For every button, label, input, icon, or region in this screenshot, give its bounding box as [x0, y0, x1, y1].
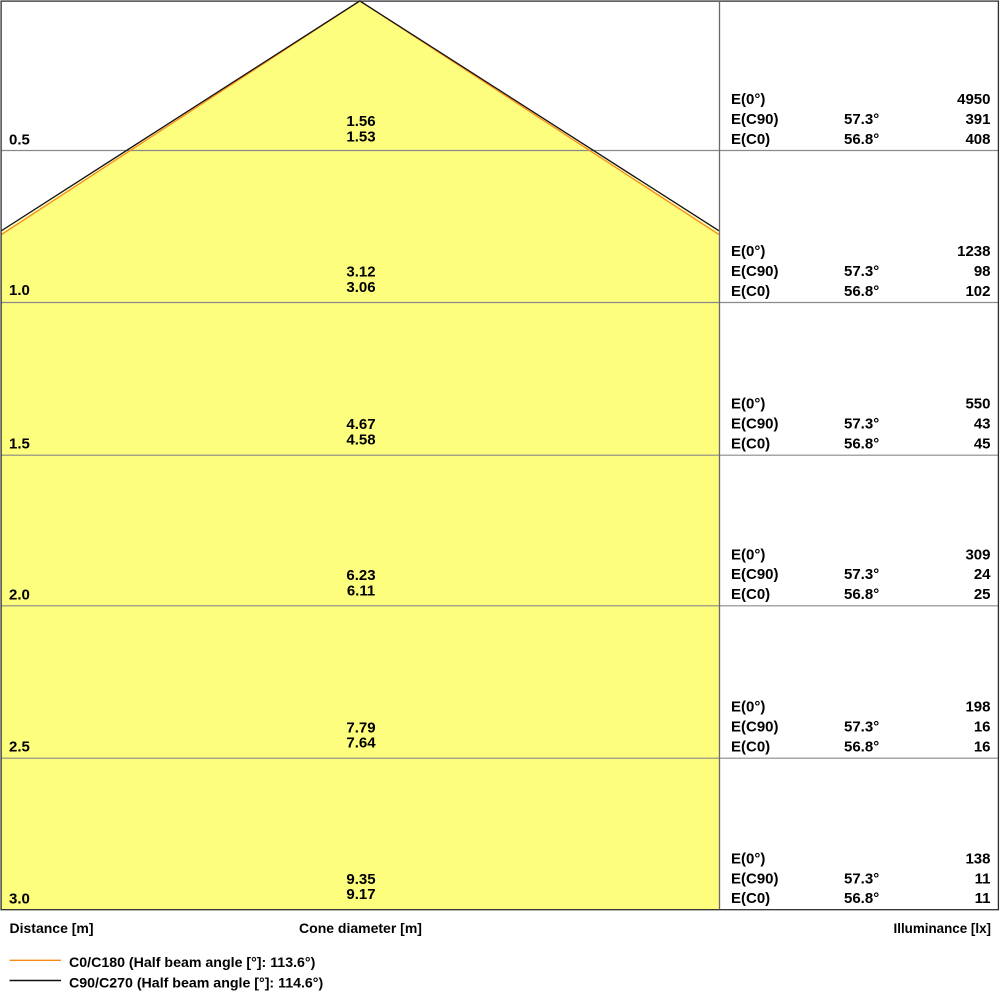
svg-text:E(0°): E(0°) — [731, 91, 765, 108]
svg-text:2.5: 2.5 — [9, 738, 30, 755]
svg-text:550: 550 — [965, 396, 990, 413]
svg-text:57.3°: 57.3° — [844, 416, 879, 433]
svg-text:C90/C270 (Half beam angle [°]:: C90/C270 (Half beam angle [°]: 114.6°) — [69, 975, 323, 991]
svg-text:Illuminance [lx]: Illuminance [lx] — [894, 921, 991, 936]
svg-text:57.3°: 57.3° — [844, 111, 879, 128]
svg-text:3.0: 3.0 — [9, 891, 30, 908]
svg-text:6.11: 6.11 — [347, 582, 375, 599]
svg-text:57.3°: 57.3° — [844, 263, 879, 280]
svg-text:57.3°: 57.3° — [844, 566, 879, 583]
svg-text:E(C90): E(C90) — [731, 719, 779, 736]
svg-text:Cone diameter [m]: Cone diameter [m] — [299, 920, 422, 936]
svg-text:E(C0): E(C0) — [731, 586, 770, 603]
svg-text:56.8°: 56.8° — [844, 890, 879, 907]
svg-text:16: 16 — [974, 738, 991, 755]
svg-text:43: 43 — [974, 416, 991, 433]
svg-text:2.0: 2.0 — [9, 587, 30, 604]
svg-text:408: 408 — [965, 131, 990, 148]
svg-text:1.56: 1.56 — [346, 113, 375, 130]
svg-text:1238: 1238 — [957, 243, 990, 260]
svg-text:56.8°: 56.8° — [844, 738, 879, 755]
svg-text:4950: 4950 — [957, 91, 990, 108]
svg-text:57.3°: 57.3° — [844, 870, 879, 887]
svg-text:3.12: 3.12 — [346, 264, 375, 281]
svg-text:E(C0): E(C0) — [731, 738, 770, 755]
svg-text:98: 98 — [974, 263, 991, 280]
svg-text:391: 391 — [965, 111, 990, 128]
svg-text:E(C90): E(C90) — [731, 870, 779, 887]
svg-text:3.06: 3.06 — [346, 279, 375, 296]
svg-text:57.3°: 57.3° — [844, 719, 879, 736]
svg-text:56.8°: 56.8° — [844, 435, 879, 452]
svg-text:E(0°): E(0°) — [731, 243, 765, 260]
svg-text:C0/C180 (Half beam angle [°]:: C0/C180 (Half beam angle [°]: 113.6°) — [69, 955, 316, 971]
svg-text:102: 102 — [965, 283, 990, 300]
svg-text:E(0°): E(0°) — [731, 546, 765, 563]
svg-text:11: 11 — [975, 870, 991, 887]
svg-text:9.17: 9.17 — [346, 886, 375, 903]
svg-text:56.8°: 56.8° — [844, 586, 879, 603]
svg-text:16: 16 — [974, 719, 991, 736]
svg-text:1.53: 1.53 — [346, 129, 375, 146]
svg-text:11: 11 — [975, 890, 991, 907]
svg-text:E(C0): E(C0) — [731, 131, 770, 148]
svg-text:E(0°): E(0°) — [731, 396, 765, 413]
svg-text:24: 24 — [974, 566, 991, 583]
svg-text:198: 198 — [965, 699, 990, 716]
svg-text:1.0: 1.0 — [9, 282, 30, 299]
svg-text:E(C90): E(C90) — [731, 566, 779, 583]
svg-text:E(0°): E(0°) — [731, 851, 765, 868]
svg-text:56.8°: 56.8° — [844, 283, 879, 300]
svg-text:E(C90): E(C90) — [731, 416, 779, 433]
svg-text:E(C90): E(C90) — [731, 111, 779, 128]
svg-text:4.58: 4.58 — [346, 431, 375, 448]
svg-text:7.64: 7.64 — [346, 735, 376, 752]
svg-text:56.8°: 56.8° — [844, 131, 879, 148]
svg-text:0.5: 0.5 — [9, 131, 30, 148]
svg-text:E(C0): E(C0) — [731, 435, 770, 452]
svg-text:E(C90): E(C90) — [731, 263, 779, 280]
svg-text:309: 309 — [965, 546, 990, 563]
svg-text:E(C0): E(C0) — [731, 283, 770, 300]
svg-text:138: 138 — [965, 851, 990, 868]
svg-text:E(0°): E(0°) — [731, 699, 765, 716]
svg-text:E(C0): E(C0) — [731, 890, 770, 907]
svg-text:45: 45 — [974, 435, 991, 452]
svg-text:25: 25 — [974, 586, 991, 603]
svg-text:1.5: 1.5 — [9, 436, 30, 453]
svg-text:Distance [m]: Distance [m] — [10, 920, 94, 936]
